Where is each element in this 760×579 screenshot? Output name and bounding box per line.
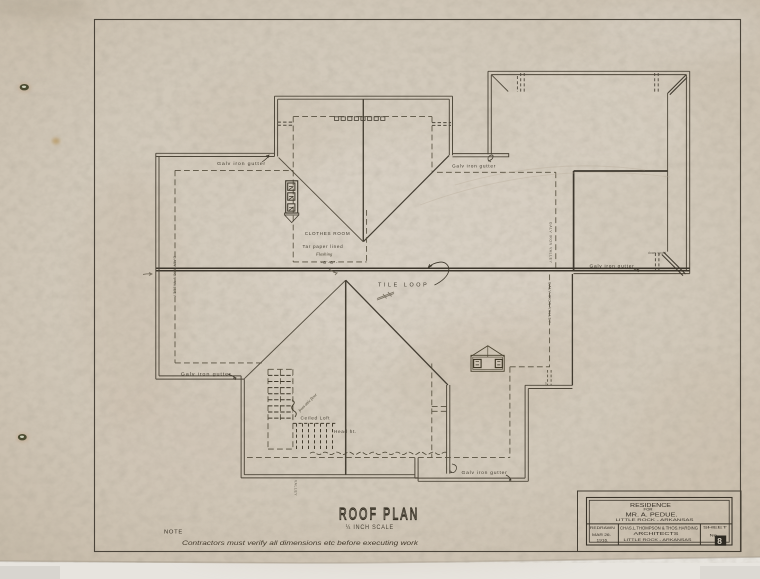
svg-text:Tar paper lined: Tar paper lined (303, 244, 344, 249)
svg-text:Galv iron gutter: Galv iron gutter (462, 470, 508, 475)
svg-text:8: 8 (717, 536, 722, 546)
svg-text:MAR 26.: MAR 26. (592, 533, 611, 537)
svg-text:GALV IRON VALLEY: GALV IRON VALLEY (549, 222, 553, 263)
svg-text:Galv iron gutter: Galv iron gutter (452, 164, 496, 169)
svg-text:SHEET: SHEET (703, 526, 729, 530)
svg-text:Galv iron gutter: Galv iron gutter (590, 264, 635, 269)
svg-text:FOR: FOR (644, 508, 654, 512)
svg-text:CLOTHES ROOM: CLOTHES ROOM (305, 231, 351, 236)
svg-text:Flashing: Flashing (315, 252, 333, 257)
svg-text:down spout: down spout (648, 251, 666, 255)
svg-text:Ceiled Loft: Ceiled Loft (301, 416, 331, 421)
svg-text:dn: dn (544, 382, 548, 386)
svg-text:¼ INCH SCALE: ¼ INCH SCALE (346, 523, 394, 531)
svg-text:VALLEY: VALLEY (294, 480, 298, 496)
svg-text:Contractors must verify all di: Contractors must verify all dimensions e… (182, 541, 419, 547)
svg-text:ARCHITECTS: ARCHITECTS (634, 531, 679, 536)
svg-text:LITTLE ROCK - ARKANSAS: LITTLE ROCK - ARKANSAS (624, 537, 692, 542)
svg-text:1916.: 1916. (597, 539, 609, 543)
svg-text:Galv iron gutter: Galv iron gutter (181, 372, 232, 377)
svg-text:NOTE: NOTE (164, 529, 183, 535)
svg-text:ROOF PLAN: ROOF PLAN (339, 504, 419, 523)
svg-text:TILE LOOP: TILE LOOP (378, 283, 429, 289)
svg-text:Galv iron gutter: Galv iron gutter (217, 161, 266, 166)
svg-text:LITTLE ROCK - ARKANSAS: LITTLE ROCK - ARKANSAS (616, 517, 695, 522)
svg-text:-6'-6″-: -6'-6″- (321, 260, 338, 265)
svg-text:GALV IRON VALLEY: GALV IRON VALLEY (548, 282, 552, 323)
svg-text:REDRAWN: REDRAWN (590, 526, 616, 530)
svg-text:Head ht.: Head ht. (334, 429, 357, 434)
svg-text:GALV IRON VALLEY: GALV IRON VALLEY (173, 256, 177, 297)
svg-text:CHAS.L.THOMPSON & THOS.HARDING: CHAS.L.THOMPSON & THOS.HARDING (620, 525, 698, 530)
